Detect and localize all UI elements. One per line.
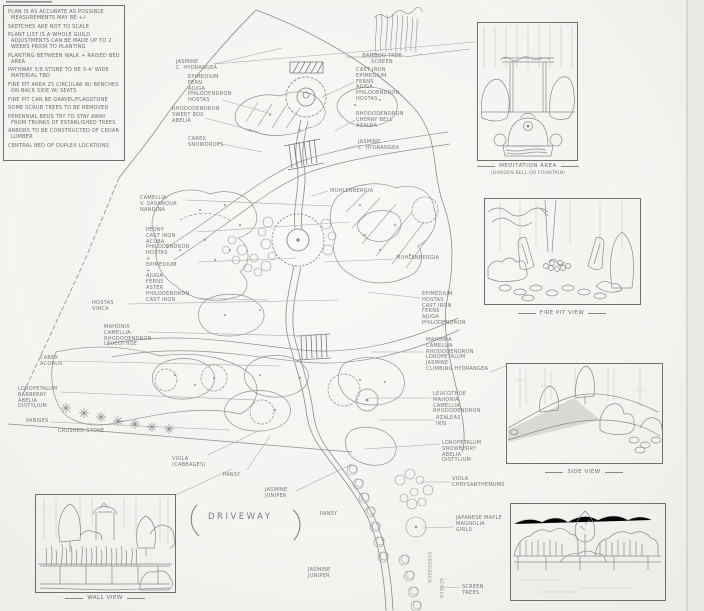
wall-view-inset-caption: Wall View	[35, 595, 175, 601]
vertical-note: EVERGREEN	[426, 552, 431, 583]
note-line: Some scrub trees to be removed	[8, 105, 121, 111]
scan-artifact	[6, 1, 52, 3]
plant-label: Mahonia Camellia Rhododendron Loropetalu…	[426, 338, 488, 373]
caption-text: Side View	[506, 469, 662, 475]
plant-label: Pansy	[223, 473, 240, 479]
plant-label: Rhododendron Cherry Bell Azalea	[356, 112, 404, 129]
material-label: Crushed Stone	[58, 429, 104, 435]
caption-text: Meditation Area	[470, 163, 586, 169]
meditation-area-plan	[286, 62, 326, 117]
fire-pit-inset-sketch	[485, 199, 641, 305]
fire-pit-inset-caption: Fire Pit View	[484, 310, 640, 316]
footbridge	[284, 139, 331, 360]
wall-view-inset-sketch	[36, 495, 176, 593]
note-line: Plan is as accurate as possible measurem…	[8, 9, 121, 21]
plant-label: Japanese Maple Magnolia Girls	[456, 516, 502, 533]
plant-label: Carex Snowdrops	[188, 137, 224, 149]
caption-text: Wall View	[35, 595, 175, 601]
perennial-circles	[223, 236, 272, 276]
plant-label: Mahonia Camellia Rhododendron Leucothoe	[104, 325, 152, 348]
plant-label: Pansies	[26, 419, 49, 425]
plant-label: Jasmine C. Hydrangea	[176, 60, 217, 72]
plant-label: Peony Cast Iron Acuba Philodendron Hosta…	[146, 228, 190, 303]
plant-label: Azaleas Iris	[436, 416, 461, 428]
note-line: Arbors to be constructed of cedar lumber	[8, 128, 121, 140]
note-line: Plant list is a whole guild adjustments …	[8, 32, 121, 50]
general-notes-box: Plan is as accurate as possible measurem…	[3, 5, 125, 161]
note-line: Fire pit can be gravel/flagstone	[8, 97, 121, 103]
scanned-landscape-plan: Plan is as accurate as possible measurem…	[0, 0, 704, 611]
note-line: Pathway 5/8 stone to be 3-4' wide materi…	[8, 67, 121, 79]
plant-label: Jasmine Juniper	[265, 488, 287, 500]
note-line: Perennial beds try to stay away from tru…	[8, 114, 121, 126]
plant-label: Muhlenbergia	[330, 189, 373, 195]
side-view-inset-sketch	[507, 364, 663, 464]
plant-label: Carex Acorus	[40, 356, 63, 368]
note-line: Fire pit area 25 circular w/ benches on …	[8, 82, 121, 94]
plant-label: Pansy	[320, 512, 337, 518]
paper-edge-strip	[688, 0, 704, 611]
plant-label: Hostas Vinca	[92, 301, 114, 313]
plant-label: Jasmine C. Hydrangea	[358, 140, 399, 152]
plant-label: Muhlenbergia	[396, 256, 439, 262]
plant-label: Viola (Cabbages)	[172, 457, 206, 469]
plant-label: Rhododendron Sweet Box Abelia	[172, 107, 220, 124]
caption-subtext: (Garden Bell or Fountain)	[470, 171, 586, 176]
note-line: Central bed of duplex locations	[8, 143, 121, 149]
meditation-inset-caption: Meditation Area (Garden Bell or Fountain…	[470, 163, 586, 176]
bamboo-screen-sketch	[346, 7, 470, 57]
screen-trees-inset-sketch	[511, 504, 666, 601]
driveway-label: DRIVEWAY	[208, 512, 272, 522]
note-line: Planting between walk + raised bed area	[8, 53, 121, 65]
plant-label: Leucothoe Mahonia Camellia Rhododendron	[433, 392, 481, 415]
plant-label: Cast Iron Epimedium Ferns Ajuga Philoden…	[356, 68, 400, 103]
note-line: Sketches are not to scale	[8, 24, 121, 30]
plant-label: Loropetalum Barberry Abelia Distylium	[18, 387, 57, 410]
plant-label: Epimedium Fern Ajuga Philodendron Hostas	[188, 75, 232, 104]
plant-label: Loropetalum Snowberry Abelia Distylium	[442, 441, 481, 464]
screen-trees-label: Screen Trees	[462, 585, 484, 597]
fire-pit-plan	[258, 214, 336, 266]
plant-label: Epimedium Hostas Cast Iron Ferns Ajuga P…	[422, 292, 466, 327]
plant-label: Jasmine Juniper	[308, 568, 330, 580]
side-view-inset-caption: Side View	[506, 469, 662, 475]
plant-label: Viola Chrysanthemums	[452, 477, 505, 489]
plant-label: Camellia V. Sasanqua Nandina	[140, 196, 177, 213]
vertical-note: SCREEN	[438, 578, 443, 599]
bamboo-screen-label: Bamboo Tree Screen	[360, 54, 404, 66]
meditation-inset-sketch	[478, 23, 578, 161]
driveway-plantings	[347, 465, 433, 611]
caption-text: Fire Pit View	[484, 310, 640, 316]
driveway-parens	[191, 505, 300, 540]
